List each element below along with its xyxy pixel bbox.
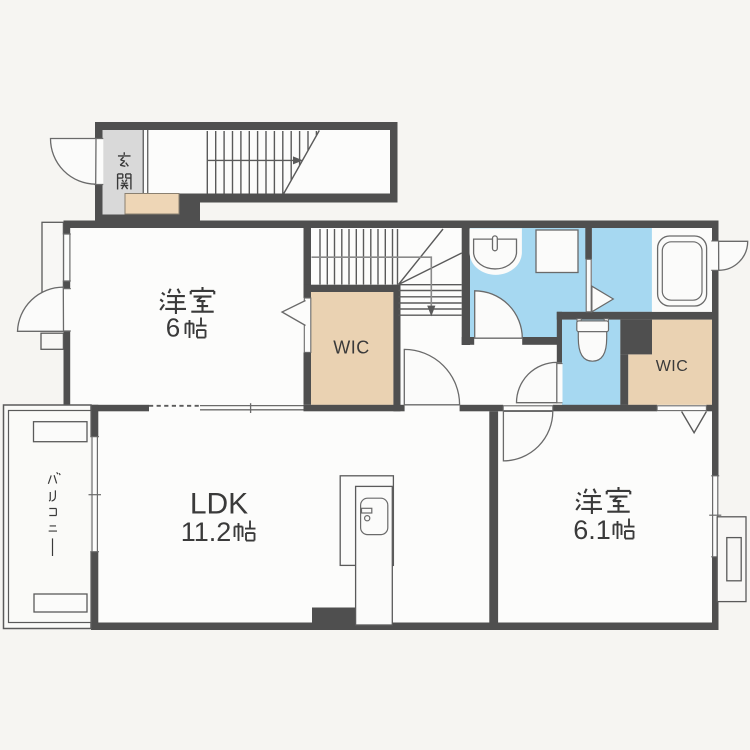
svg-text:WIC: WIC bbox=[333, 338, 370, 358]
svg-text:LDK: LDK bbox=[190, 488, 248, 521]
svg-text:11.2: 11.2 bbox=[181, 517, 232, 547]
svg-text:WIC: WIC bbox=[656, 358, 689, 375]
svg-text:6.1: 6.1 bbox=[573, 515, 611, 545]
svg-text:6: 6 bbox=[166, 313, 180, 343]
